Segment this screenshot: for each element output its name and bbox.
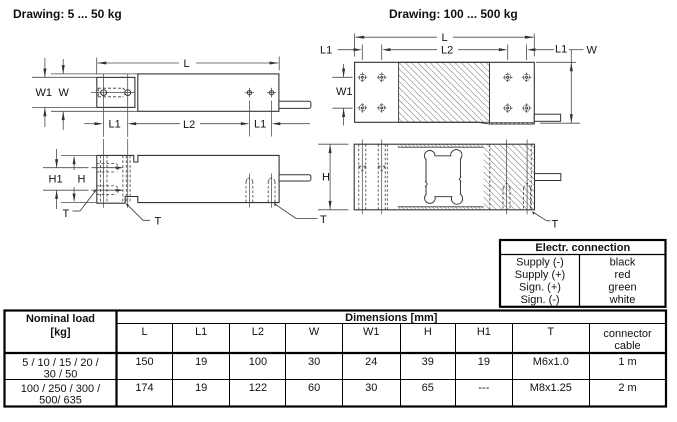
svg-text:T: T xyxy=(552,218,559,230)
svg-text:white: white xyxy=(609,294,636,306)
svg-text:L: L xyxy=(184,58,190,70)
svg-text:Sign. (+): Sign. (+) xyxy=(519,282,561,294)
svg-text:H: H xyxy=(322,172,330,184)
svg-text:L1: L1 xyxy=(109,119,121,131)
svg-text:T: T xyxy=(63,208,70,220)
svg-text:L2: L2 xyxy=(183,119,195,131)
svg-text:H: H xyxy=(424,326,432,338)
svg-text:65: 65 xyxy=(422,382,434,394)
svg-text:100 / 250 / 300 /: 100 / 250 / 300 / xyxy=(21,383,101,395)
svg-text:H1: H1 xyxy=(477,326,491,338)
svg-text:L1: L1 xyxy=(555,44,567,56)
svg-text:Dimensions [mm]: Dimensions [mm] xyxy=(345,312,438,324)
svg-text:2 m: 2 m xyxy=(618,382,636,394)
svg-text:174: 174 xyxy=(135,382,153,394)
svg-text:500/ 635: 500/ 635 xyxy=(39,394,82,406)
svg-text:Drawing: 5 ... 50 kg: Drawing: 5 ... 50 kg xyxy=(13,7,122,21)
svg-text:cable: cable xyxy=(614,340,640,352)
svg-text:122: 122 xyxy=(249,382,267,394)
svg-text:T: T xyxy=(547,326,554,338)
svg-text:H: H xyxy=(78,174,86,186)
svg-text:30: 30 xyxy=(365,382,377,394)
svg-text:W1: W1 xyxy=(336,86,353,98)
svg-text:H1: H1 xyxy=(49,174,63,186)
svg-text:M6x1.0: M6x1.0 xyxy=(533,356,569,368)
svg-text:black: black xyxy=(610,257,636,269)
svg-text:Drawing: 100 ... 500 kg: Drawing: 100 ... 500 kg xyxy=(389,7,518,21)
svg-text:L1: L1 xyxy=(254,119,266,131)
svg-text:150: 150 xyxy=(135,356,153,368)
svg-text:L2: L2 xyxy=(441,44,453,56)
svg-text:[kg]: [kg] xyxy=(50,327,71,339)
svg-text:Electr. connection: Electr. connection xyxy=(535,242,630,254)
svg-text:L: L xyxy=(141,326,147,338)
svg-text:19: 19 xyxy=(195,356,207,368)
svg-text:T: T xyxy=(155,216,162,228)
svg-text:100: 100 xyxy=(249,356,267,368)
svg-text:Supply (-): Supply (-) xyxy=(516,257,564,269)
svg-text:W1: W1 xyxy=(363,326,380,338)
svg-text:19: 19 xyxy=(195,382,207,394)
svg-text:5 / 10 / 15 / 20 /: 5 / 10 / 15 / 20 / xyxy=(22,357,99,369)
svg-text:Sign. (-): Sign. (-) xyxy=(520,294,559,306)
svg-text:red: red xyxy=(615,269,631,281)
svg-text:W1: W1 xyxy=(36,87,53,99)
svg-text:1 m: 1 m xyxy=(618,356,636,368)
svg-text:Nominal load: Nominal load xyxy=(26,313,95,325)
svg-text:---: --- xyxy=(478,382,489,394)
svg-text:L: L xyxy=(442,32,448,44)
svg-text:L2: L2 xyxy=(252,326,264,338)
svg-text:30: 30 xyxy=(308,356,320,368)
svg-text:L1: L1 xyxy=(320,44,332,56)
svg-text:19: 19 xyxy=(478,356,490,368)
svg-text:green: green xyxy=(608,282,636,294)
svg-text:M8x1.25: M8x1.25 xyxy=(530,382,572,394)
svg-text:W: W xyxy=(59,87,70,99)
svg-text:L1: L1 xyxy=(195,326,207,338)
svg-text:T: T xyxy=(320,214,327,226)
svg-text:60: 60 xyxy=(308,382,320,394)
svg-text:24: 24 xyxy=(365,356,377,368)
svg-text:Supply (+): Supply (+) xyxy=(515,269,565,281)
svg-text:39: 39 xyxy=(422,356,434,368)
svg-text:connector: connector xyxy=(603,328,652,340)
svg-text:W: W xyxy=(309,326,320,338)
svg-text:30 / 50: 30 / 50 xyxy=(44,368,78,380)
svg-text:W: W xyxy=(587,44,598,56)
